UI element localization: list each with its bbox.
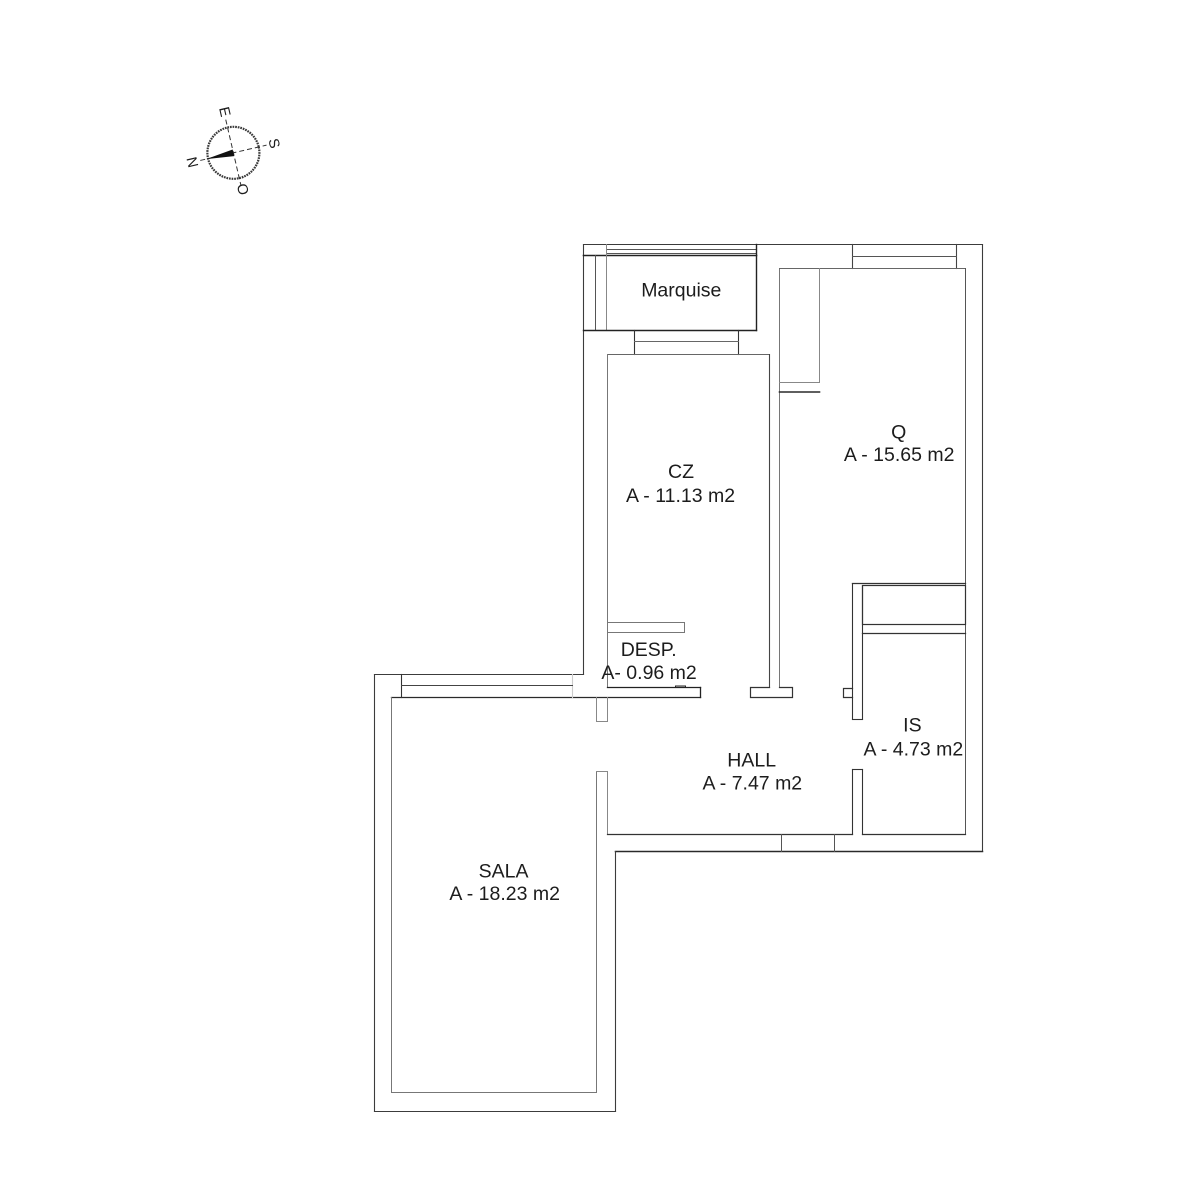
- svg-text:Q: Q: [891, 422, 906, 444]
- svg-text:N: N: [183, 156, 201, 170]
- svg-text:SALA: SALA: [479, 861, 529, 883]
- svg-text:A - 18.23 m2: A - 18.23 m2: [449, 883, 560, 905]
- svg-text:A - 7.47 m2: A - 7.47 m2: [702, 772, 802, 794]
- svg-text:Marquise: Marquise: [641, 280, 721, 302]
- svg-text:DESP.: DESP.: [621, 639, 677, 661]
- svg-text:IS: IS: [903, 715, 921, 737]
- svg-text:A- 0.96 m2: A- 0.96 m2: [601, 662, 696, 684]
- svg-text:S: S: [264, 137, 282, 150]
- svg-text:A - 11.13 m2: A - 11.13 m2: [626, 485, 735, 507]
- svg-text:CZ: CZ: [668, 461, 694, 483]
- svg-text:E: E: [215, 105, 233, 118]
- svg-text:HALL: HALL: [727, 750, 776, 772]
- svg-text:A - 15.65 m2: A - 15.65 m2: [844, 444, 955, 466]
- svg-text:A - 4.73 m2: A - 4.73 m2: [864, 738, 964, 760]
- svg-text:O: O: [233, 182, 251, 197]
